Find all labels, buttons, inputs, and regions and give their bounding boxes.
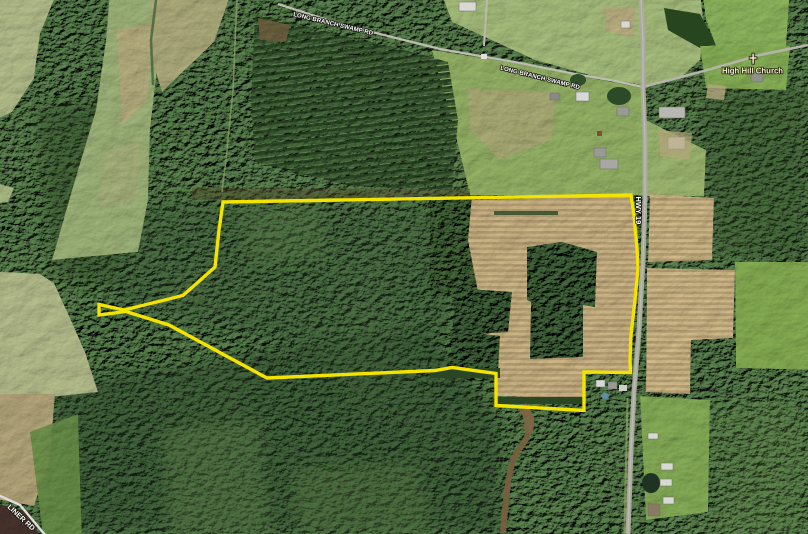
svg-text:HWY 19: HWY 19 [634, 197, 643, 225]
svg-text:High Hill Church: High Hill Church [722, 67, 783, 76]
